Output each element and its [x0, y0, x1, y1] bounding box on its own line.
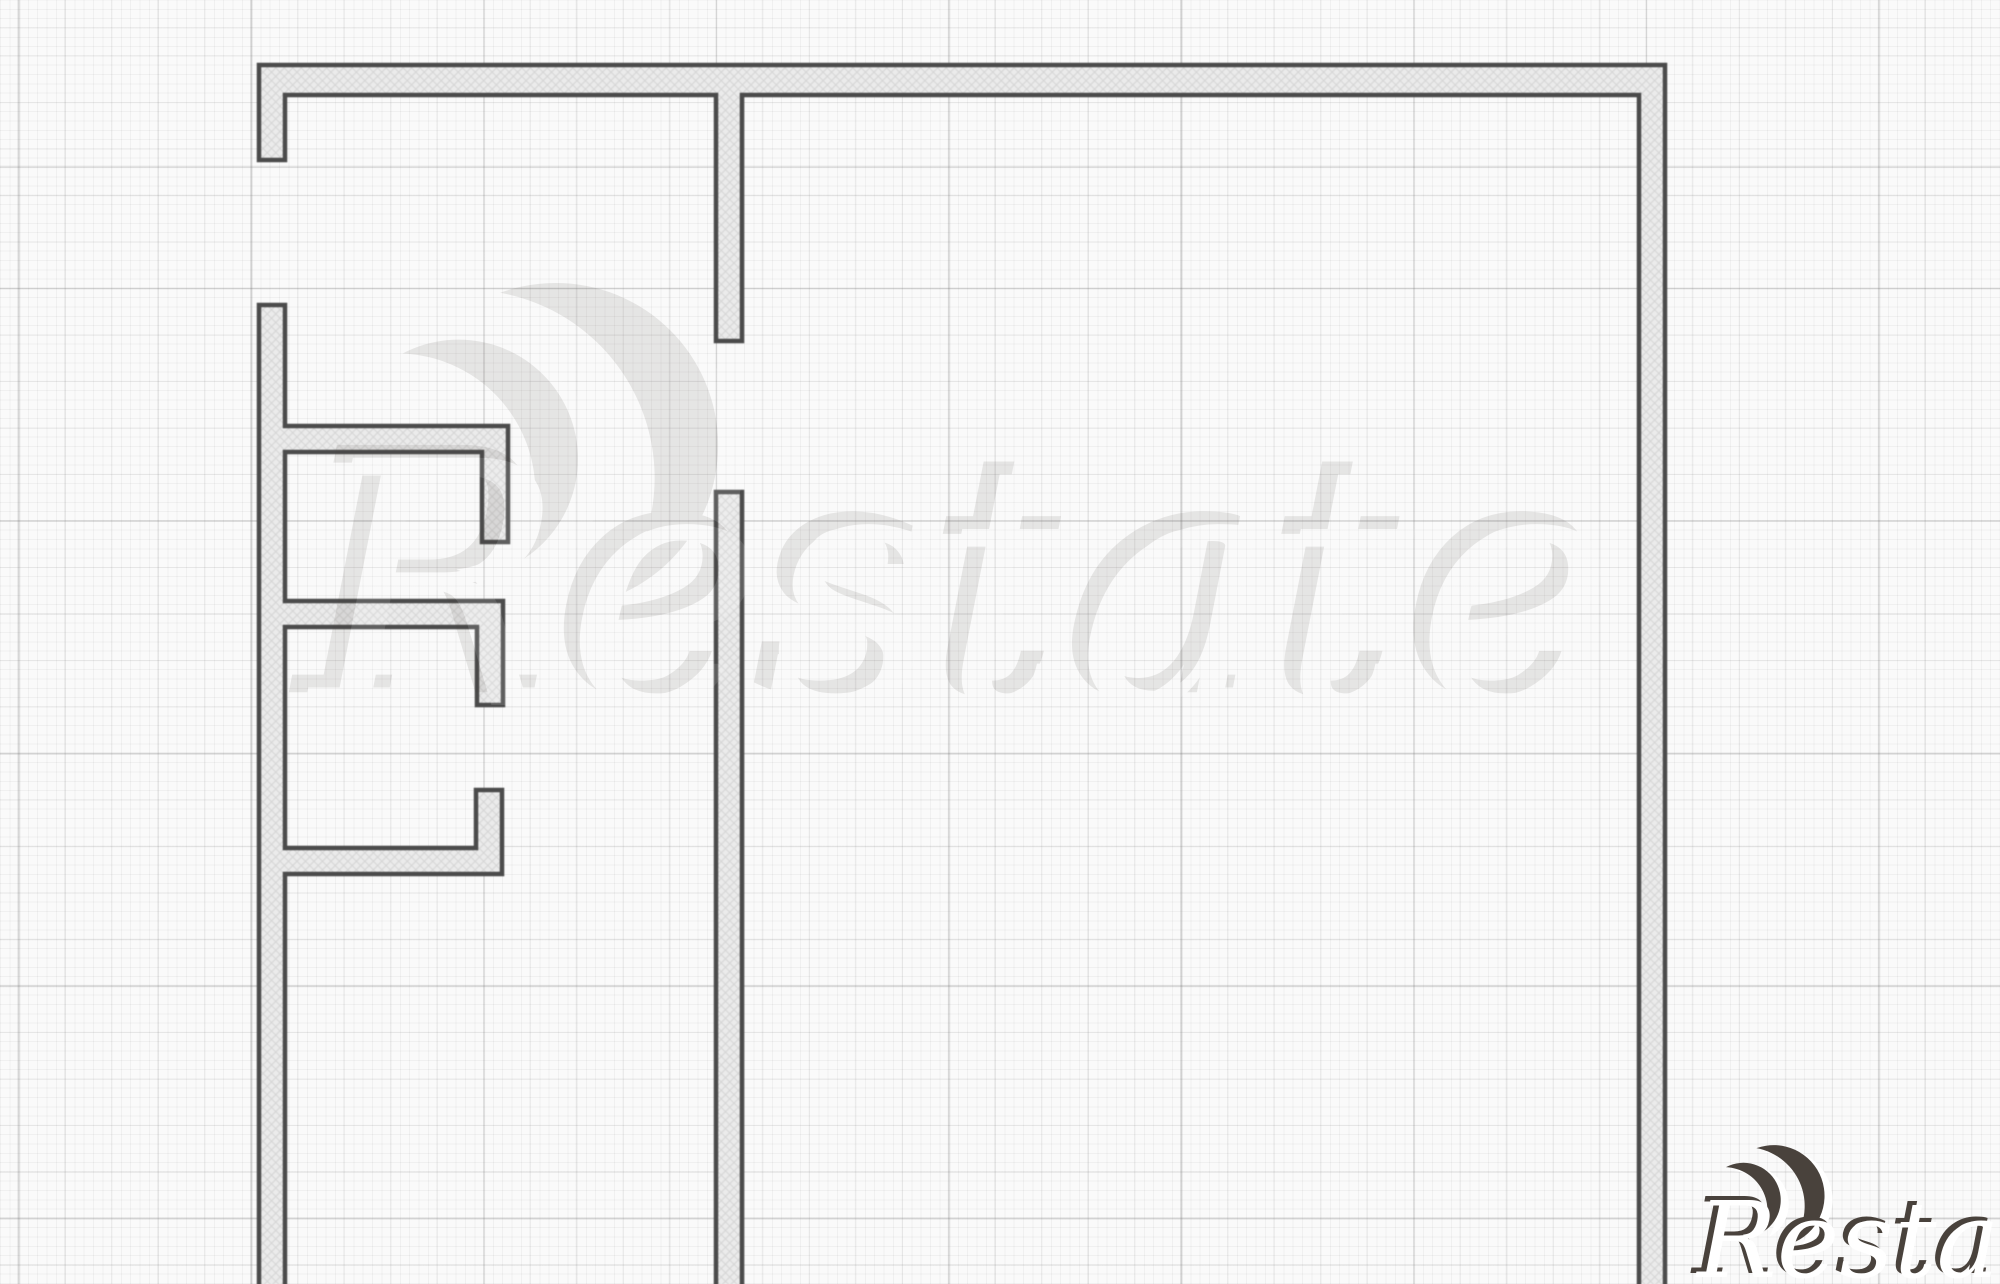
watermark-text: Restate: [1695, 1179, 2000, 1284]
watermark-text: Restate: [305, 390, 1616, 785]
floor-plan-svg: RestateRestateRestateRestate: [0, 0, 2000, 1284]
floor-plan-canvas: RestateRestateRestateRestate: [0, 0, 2000, 1284]
ghost-watermark: RestateRestate: [289, 257, 1616, 785]
corner-watermark: RestateRestate: [1690, 1137, 2000, 1284]
